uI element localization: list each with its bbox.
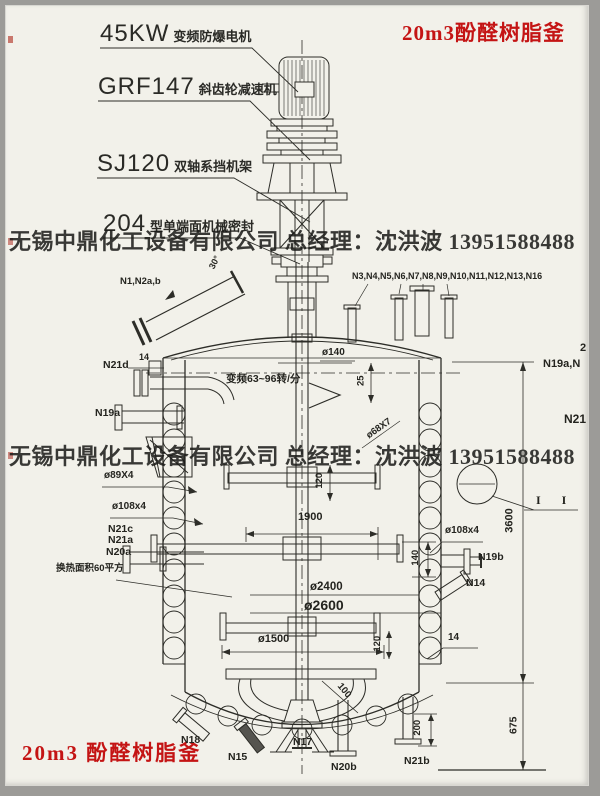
callout-frame-desc: 双轴系挡机架: [174, 159, 252, 174]
nozzle-n19b: [441, 549, 481, 574]
edge-label-n21: N21: [564, 413, 586, 425]
nozzle-label-n20b: N20b: [331, 762, 357, 773]
callout-reducer-code: GRF147: [98, 73, 195, 100]
dim-3600: 3600: [505, 508, 516, 532]
callout-motor: 45KW变频防爆电机: [100, 20, 251, 48]
callout-reducer: GRF147斜齿轮减速机: [98, 73, 277, 101]
dim-1500: ø1500: [258, 634, 289, 645]
edge-label-top: 2: [580, 343, 586, 354]
dim-2400: ø2400: [310, 582, 343, 594]
nozzle-label-n20a: N20a: [106, 547, 131, 558]
title-top-right: 20m3酚醛树脂釜: [402, 23, 565, 44]
dim-25: 25: [357, 375, 367, 386]
dim-140: 140: [411, 550, 421, 566]
speed-note: 变频63~96转/分: [226, 374, 300, 385]
drawing-sheet: 45KW变频防爆电机 GRF147斜齿轮减速机 SJ120双轴系挡机架 204型…: [0, 0, 600, 796]
nozzle-label-n21d: N21d: [103, 360, 129, 371]
nozzle-label-n19b: N19b: [478, 552, 504, 563]
dim-120-upper: 120: [315, 473, 325, 489]
dim-14-right: 14: [448, 633, 459, 643]
nozzle-n20b: [330, 700, 356, 756]
nozzle-label-n21a: N21a: [108, 535, 133, 546]
nozzle-label-n15: N15: [228, 752, 247, 763]
nozzle-label-n14: N14: [466, 578, 485, 589]
callout-frame: SJ120双轴系挡机架: [97, 150, 252, 178]
nozzle-n19a: [115, 405, 184, 430]
callout-reducer-desc: 斜齿轮减速机: [199, 82, 277, 97]
nozzle-label-n18: N18: [181, 735, 200, 746]
dim-675: 675: [509, 716, 520, 734]
dim-120-lower: 120: [373, 636, 383, 652]
nozzle-label-n21c: N21c: [108, 524, 133, 535]
dim-shaft-dia: ø140: [322, 348, 345, 358]
nozzle-label-n1-n2: N1,N2a,b: [120, 277, 161, 287]
dim-14-left: 14: [139, 353, 149, 362]
top-head-nozzle-stubs: [344, 284, 457, 342]
dim-2600: ø2600: [304, 598, 344, 612]
nozzle-n21d: [128, 361, 234, 404]
watermark-line-1: 无锡中鼎化工设备有限公司 总经理：沈洪波 13951588488: [9, 231, 575, 253]
edge-label-n19a: N19a,N: [543, 359, 580, 370]
nozzle-label-n19a: N19a: [95, 408, 120, 419]
section-mark: I I: [536, 494, 575, 506]
nozzle-label-n21b: N21b: [404, 756, 430, 767]
dim-200: 200: [413, 720, 423, 736]
heat-area-note: 换热面积60平方: [56, 564, 124, 574]
callout-motor-desc: 变频防爆电机: [173, 29, 251, 44]
callout-motor-code: 45KW: [100, 20, 169, 47]
agitator-internals: [151, 262, 403, 752]
nozzle-label-n17: N17: [293, 737, 312, 748]
dim-1900: 1900: [298, 512, 322, 523]
title-bottom-left: 20m3 酚醛树脂釜: [22, 743, 201, 764]
dim-coil-108-left: ø108x4: [112, 502, 146, 512]
watermark-line-2: 无锡中鼎化工设备有限公司 总经理：沈洪波 13951588488: [9, 446, 575, 468]
dim-coil-89: ø89X4: [104, 471, 133, 481]
nozzle-label-top-row: N3,N4,N5,N6,N7,N8,N9,N10,N11,N12,N13,N16: [352, 272, 542, 281]
technical-drawing-canvas: [0, 0, 600, 796]
callout-frame-code: SJ120: [97, 150, 170, 177]
dim-coil-108-right: ø108x4: [445, 526, 479, 536]
